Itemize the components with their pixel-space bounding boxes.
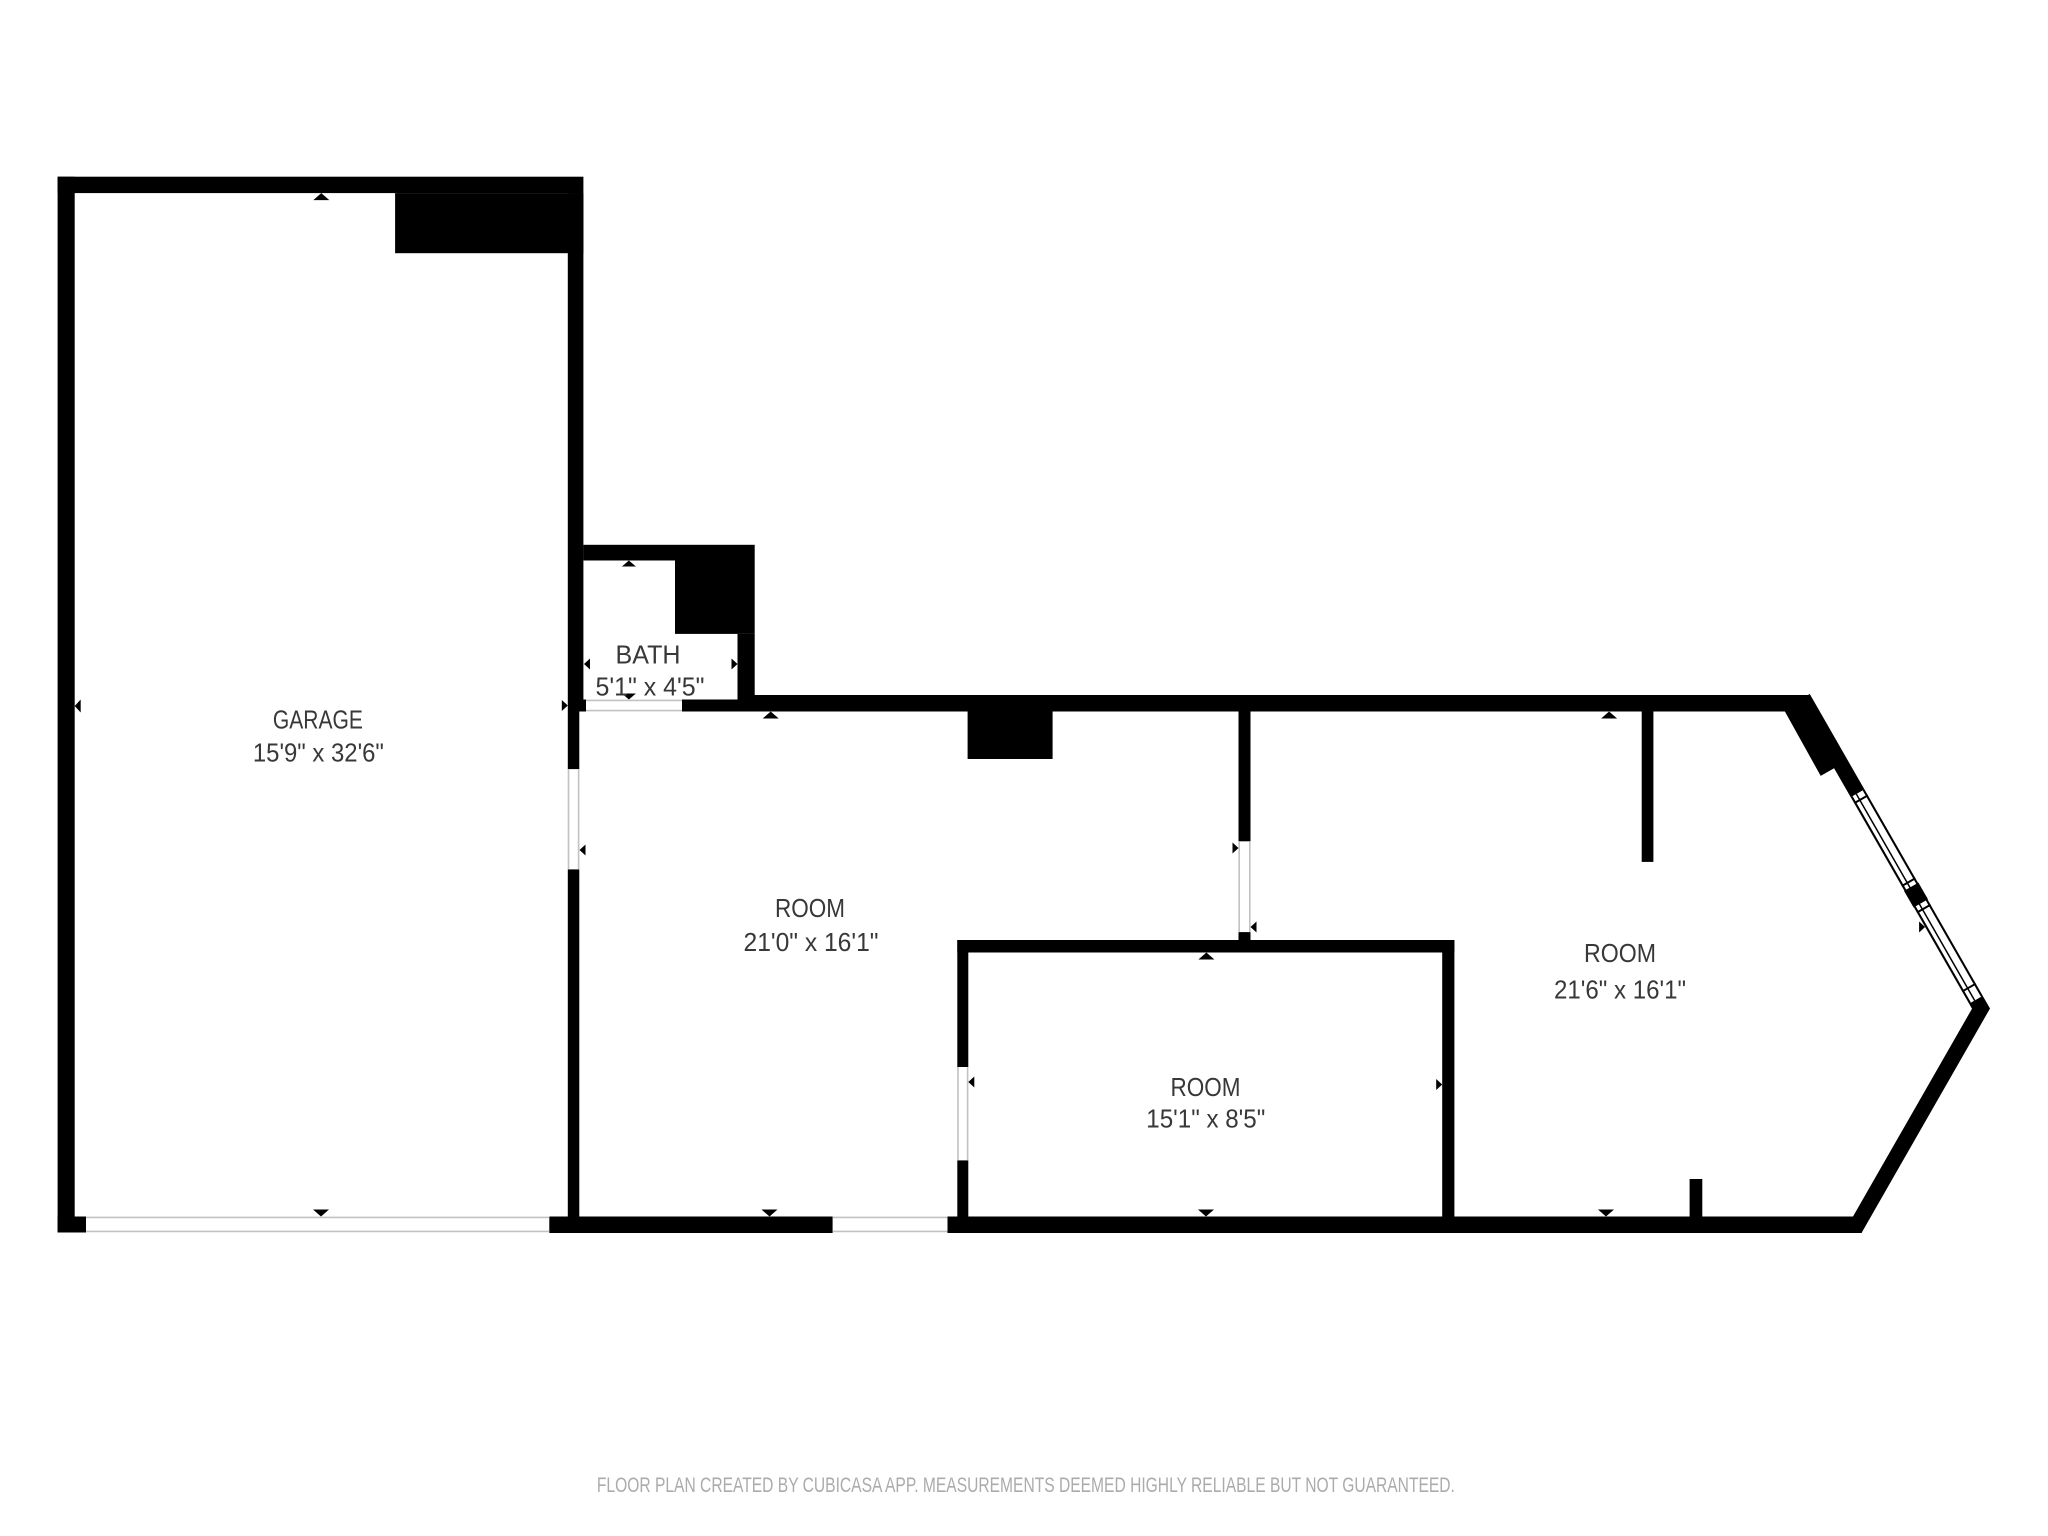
- svg-text:FLOOR PLAN CREATED BY CUBICASA: FLOOR PLAN CREATED BY CUBICASA APP. MEAS…: [597, 1474, 1455, 1497]
- svg-text:ROOM: ROOM: [1171, 1072, 1241, 1102]
- svg-text:ROOM: ROOM: [775, 893, 845, 923]
- svg-text:5'1" x 4'5": 5'1" x 4'5": [596, 672, 705, 702]
- svg-text:GARAGE: GARAGE: [273, 705, 363, 735]
- svg-text:21'0" x 16'1": 21'0" x 16'1": [744, 927, 879, 957]
- svg-text:15'9" x 32'6": 15'9" x 32'6": [253, 738, 384, 768]
- svg-text:ROOM: ROOM: [1584, 938, 1656, 968]
- svg-text:BATH: BATH: [616, 640, 681, 670]
- svg-text:21'6" x 16'1": 21'6" x 16'1": [1554, 975, 1686, 1005]
- svg-text:15'1" x 8'5": 15'1" x 8'5": [1146, 1103, 1265, 1133]
